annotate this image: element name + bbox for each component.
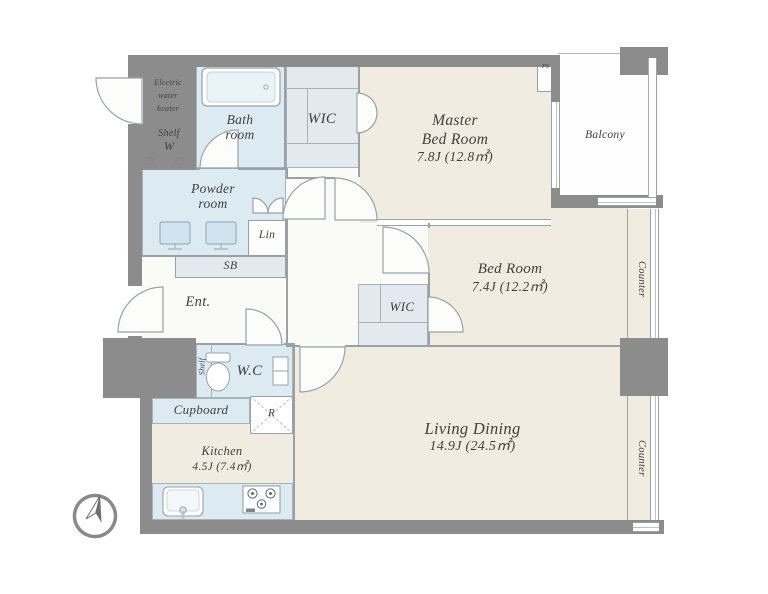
service-door-swing — [96, 78, 142, 124]
kitchen-label: Kitchen 4.5J (7.4㎡) — [162, 444, 282, 474]
laundry-shelf-label: Shelf — [142, 128, 196, 139]
bathtub — [202, 68, 280, 106]
wic-upper-label: WIC — [286, 111, 358, 128]
cupboard-label: Cupboard — [152, 403, 250, 418]
master-door-swing — [335, 178, 377, 220]
kitchen-sink — [163, 487, 203, 519]
washer-label: W — [142, 140, 196, 153]
hall-door-swing — [283, 177, 325, 219]
living-door-swing — [300, 347, 345, 392]
refrigerator-label: R — [250, 407, 293, 419]
shoe-box-label: SB — [175, 259, 286, 272]
linen-label: Lin — [248, 229, 286, 242]
pipe-space-label: PS — [537, 63, 554, 70]
doors-and-fixtures-overlay — [0, 0, 768, 594]
powder-room-label: Powder room — [150, 181, 276, 211]
master-bedroom-label: Master Bed Room 7.8J (12.8㎡) — [370, 112, 540, 165]
counter-upper-label: Counter — [631, 248, 647, 310]
living-dining-label: Living Dining 14.9J (24.5㎡) — [380, 419, 565, 456]
wc-shelf-label: Shelf — [199, 351, 208, 381]
floor-plan: Electric water heater Shelf W Bath room … — [0, 0, 768, 594]
wc-door-swing — [246, 309, 282, 345]
wic-middle-label: WIC — [362, 300, 442, 315]
compass-north-icon — [70, 491, 120, 541]
bath-room-label: Bath room — [196, 112, 284, 142]
balcony-label: Balcony — [565, 129, 645, 142]
powder-sink-left — [160, 222, 190, 249]
washer-pan-feet — [147, 158, 182, 164]
entrance-label: Ent. — [142, 294, 254, 310]
powder-sink-right — [206, 222, 236, 249]
counter-lower-label: Counter — [631, 427, 647, 489]
stove — [243, 486, 280, 513]
bedroom-label: Bed Room 7.4J (12.2㎡) — [420, 260, 600, 296]
electric-water-heater-label: Electric water heater — [143, 77, 193, 115]
wc-label: W.C — [222, 363, 277, 380]
